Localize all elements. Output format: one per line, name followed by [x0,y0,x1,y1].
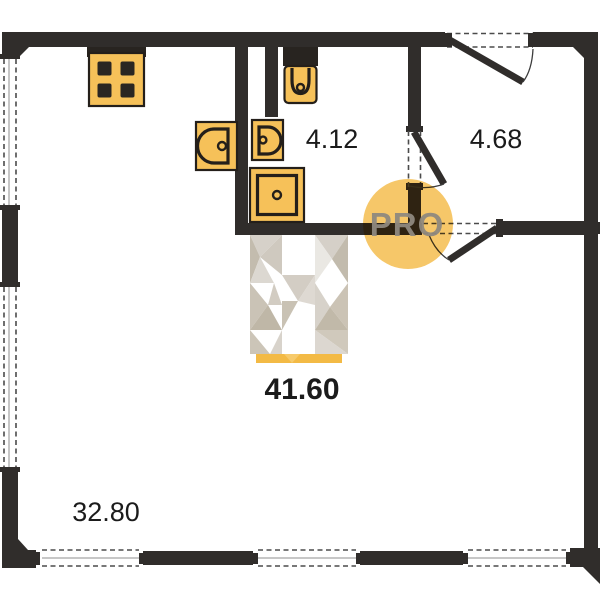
wall-bottom-right-corner [570,548,600,584]
wall-left-mid [2,207,18,287]
area-label-living-room: 32.80 [72,497,140,527]
pro-watermark: PRO [363,179,453,269]
door-hinge-block [528,33,536,47]
floor-plan-canvas: 4.12 4.68 41.60 32.80 PRO [0,0,600,600]
wardrobe-icon [250,235,348,363]
door-leaf [449,228,497,260]
wall-right [584,45,598,553]
wall-cap [253,553,258,564]
door-swing-arc [523,49,533,82]
area-label-hallway: 4.68 [470,124,523,154]
door-leaf [414,132,444,184]
washbasin-icon [252,120,283,160]
floor-plan: 4.12 4.68 41.60 32.80 PRO [0,0,600,600]
window-left-2 [4,287,16,467]
wall-bottom-left-corner [2,550,36,568]
wall-corner-bevel-bottom-left [18,539,28,550]
wall-corner-bevel-top-right [573,47,584,58]
wall-cap [463,553,468,564]
wall-cap [0,282,20,287]
window-bottom-1 [42,550,139,566]
fixtures [87,47,348,363]
kitchen-sink-icon [196,122,237,170]
wardrobe-base-strip [256,354,342,363]
wall-top-right [533,32,598,47]
wall-bottom-segment-1 [143,551,253,565]
area-label-bathroom: 4.12 [306,124,359,154]
door-leaf [448,39,523,82]
wall-left-top [2,32,18,55]
wall-cap [34,552,40,565]
toilet-icon [283,47,318,103]
area-label-total: 41.60 [264,373,339,406]
wall-bottom-segment-2 [360,551,463,565]
window-bottom-3 [468,550,566,566]
wall-bathroom-right-upper [408,47,421,131]
wall-cap [0,54,20,59]
wall-top-left [2,32,445,47]
wall-duct [265,47,278,117]
entrance-door [444,33,536,82]
stove-icon [87,47,146,106]
window-left-1 [4,59,16,205]
window-bottom-2 [258,550,356,566]
wall-hall-divider [500,221,598,235]
wall-door-post [496,219,503,237]
shower-icon [250,168,304,222]
pro-watermark-text: PRO [370,206,445,243]
bathroom-door [409,131,445,188]
